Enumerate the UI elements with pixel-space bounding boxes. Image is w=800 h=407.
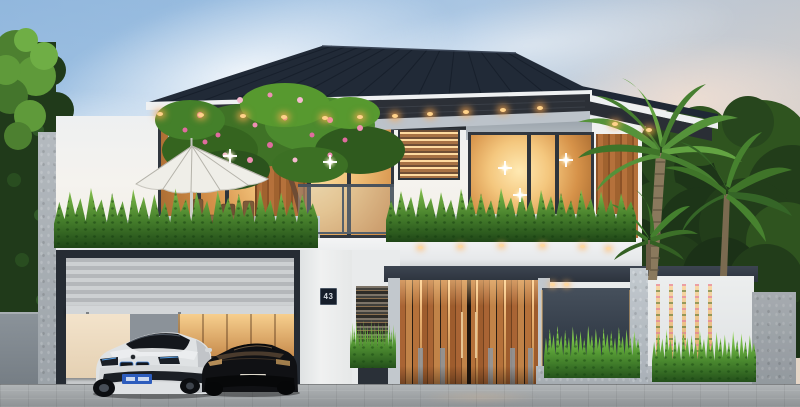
soffit-downlight bbox=[392, 114, 398, 118]
window-light-flare bbox=[223, 149, 237, 163]
car-badge bbox=[131, 355, 136, 360]
car-black-sports bbox=[202, 344, 298, 396]
canopy-downlight bbox=[606, 247, 611, 250]
wing-downlight bbox=[646, 128, 652, 132]
window-light-flare bbox=[323, 155, 337, 169]
side-mirror bbox=[205, 348, 212, 352]
railing-post bbox=[342, 187, 344, 232]
soffit-downlight bbox=[463, 110, 469, 114]
canopy-downlight bbox=[499, 244, 504, 247]
canopy-downlight bbox=[540, 244, 545, 247]
soffit-downlight bbox=[500, 108, 506, 112]
soffit-downlight bbox=[322, 116, 328, 120]
window-light-flare bbox=[559, 153, 573, 167]
fence-downlight bbox=[564, 283, 569, 286]
fence-downlight bbox=[550, 283, 555, 286]
wing-downlight bbox=[612, 122, 618, 126]
soffit-downlight bbox=[357, 115, 363, 119]
soffit-downlight bbox=[537, 106, 543, 110]
soffit-downlight bbox=[198, 113, 204, 117]
car-white-coupe bbox=[93, 332, 214, 397]
canopy-downlight bbox=[458, 245, 463, 248]
soffit-downlight bbox=[240, 114, 246, 118]
soffit-downlight bbox=[427, 112, 433, 116]
window-light-flare bbox=[513, 188, 527, 202]
soffit-downlight bbox=[281, 115, 287, 119]
canopy-downlight bbox=[580, 245, 585, 248]
window-light-flare bbox=[498, 161, 512, 175]
canopy-downlight bbox=[418, 246, 423, 249]
soffit-downlight bbox=[157, 112, 163, 116]
villa-exterior-render: 43 bbox=[0, 0, 800, 407]
